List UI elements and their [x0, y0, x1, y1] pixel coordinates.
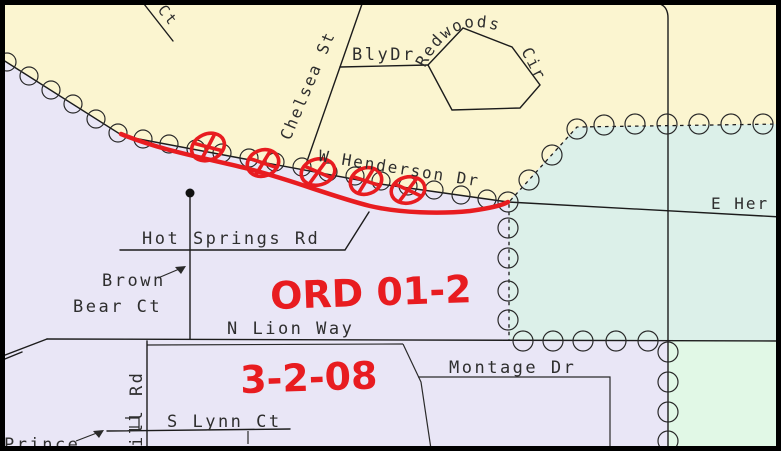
region-southeast-green	[668, 341, 781, 449]
label-n-lion-way: N Lion Way	[227, 319, 354, 339]
label-montage-dr: Montage Dr	[449, 358, 576, 378]
label-e-henderson: E Her	[711, 194, 769, 213]
label-ill-rd: ill Rd	[127, 371, 147, 447]
ordinance-number-annotation: ORD 01-2	[269, 267, 472, 318]
map-canvas[interactable]: ORD 01-2 3-2-08 Ct Chelsea St BlyDr Redw…	[0, 0, 781, 451]
ordinance-date-annotation: 3-2-08	[239, 353, 378, 402]
cul-de-sac-dot	[186, 189, 195, 198]
label-hot-springs-rd: Hot Springs Rd	[142, 229, 320, 249]
label-bly-dr: BlyDr	[352, 45, 416, 65]
label-s-lynn-ct: S Lynn Ct	[167, 412, 282, 432]
parcel-map[interactable]: ORD 01-2 3-2-08 Ct Chelsea St BlyDr Redw…	[0, 0, 781, 451]
label-bear-ct: Bear Ct	[73, 297, 162, 317]
label-brown: Brown	[102, 271, 166, 291]
